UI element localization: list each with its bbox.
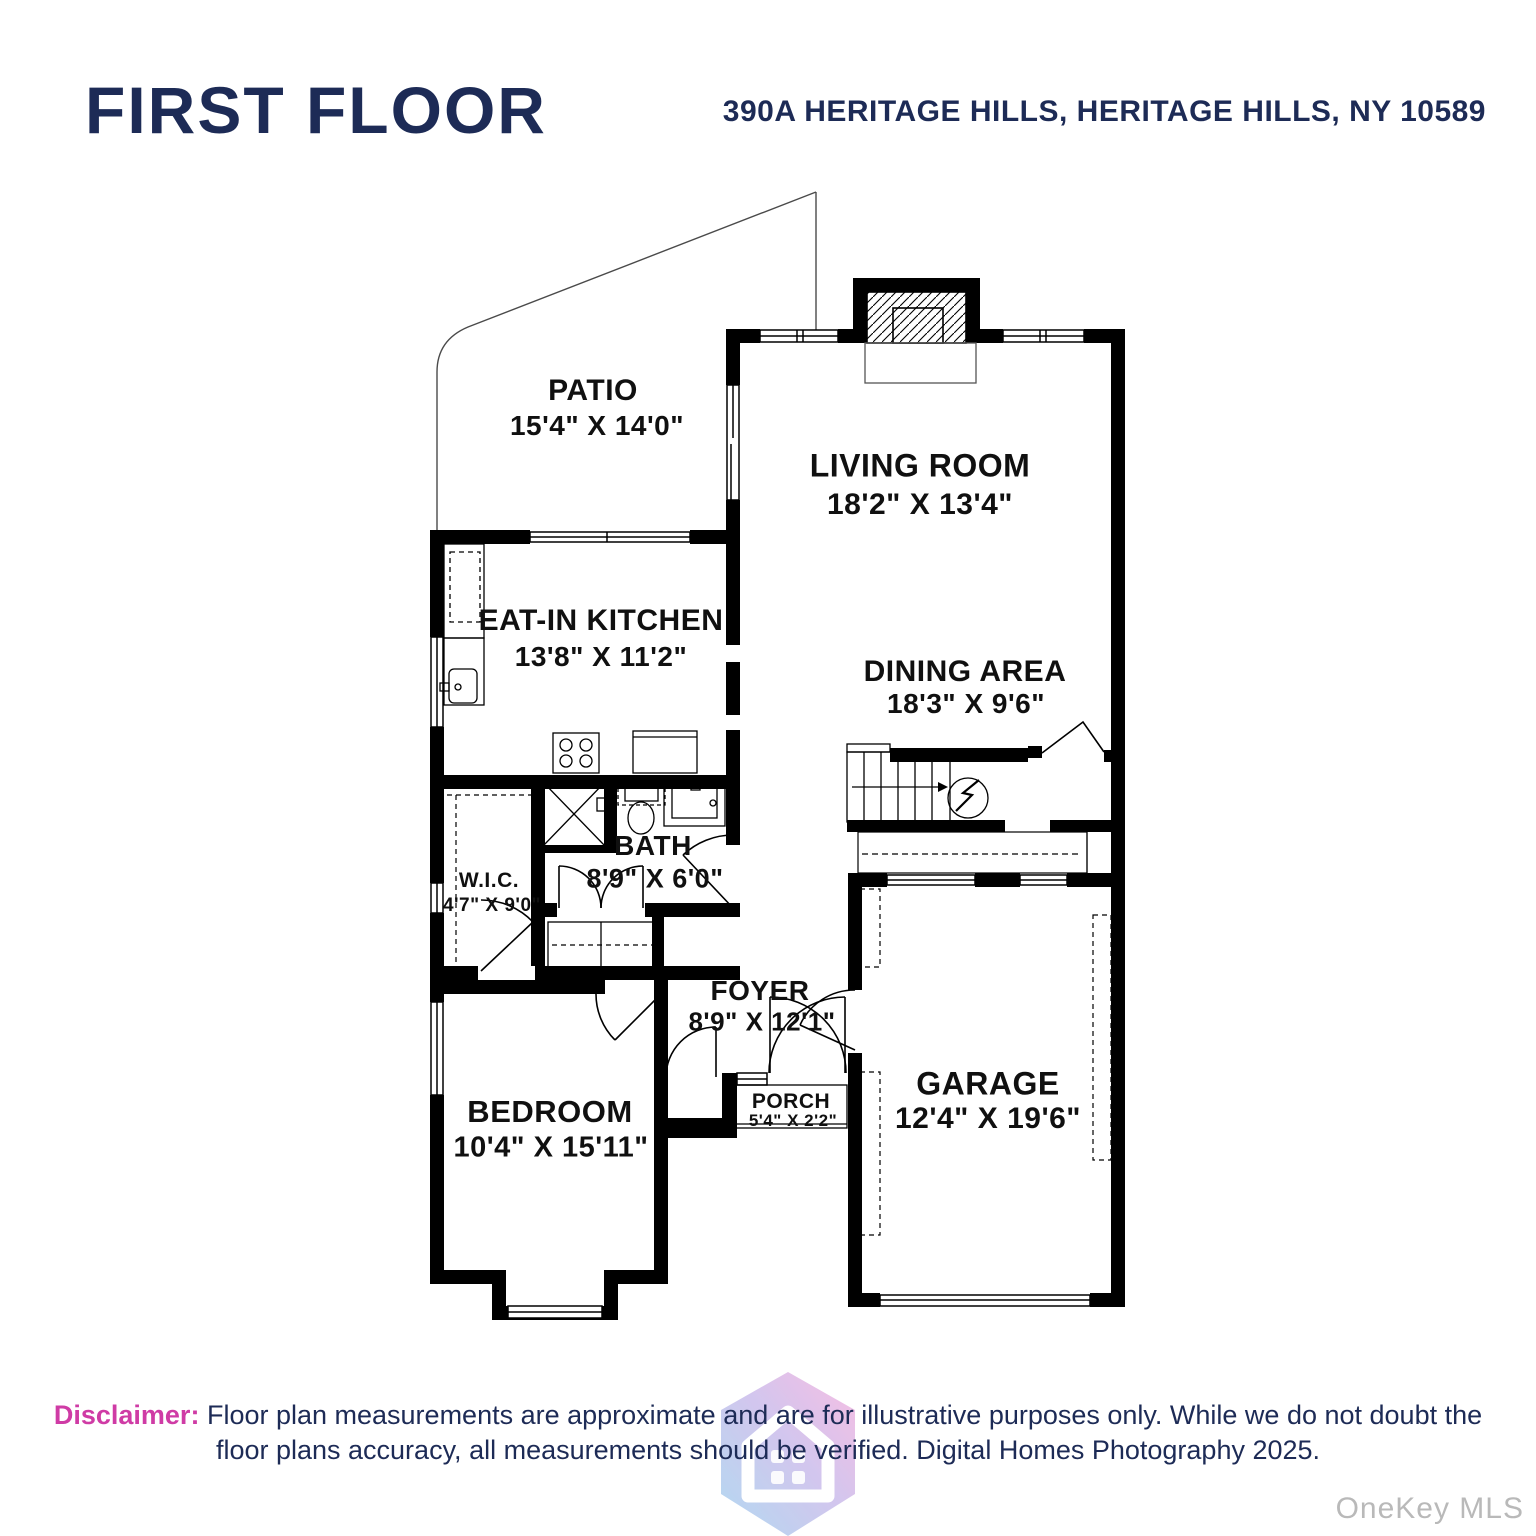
shower-icon bbox=[543, 782, 605, 846]
fireplace-icon bbox=[865, 292, 976, 383]
room-label-dining-area: DINING AREA bbox=[864, 655, 1067, 689]
vanity-sink-icon bbox=[664, 781, 725, 826]
garage-window-left-icon bbox=[887, 875, 975, 885]
room-dims-patio: 15'4" X 14'0" bbox=[510, 410, 684, 442]
property-line bbox=[437, 192, 816, 530]
room-dims-garage: 12'4" X 19'6" bbox=[895, 1102, 1081, 1136]
garage-storage-strip bbox=[858, 832, 1087, 873]
floor-plan-drawing bbox=[0, 0, 1536, 1536]
room-dims-bath: 8'9" X 6'0" bbox=[586, 864, 723, 895]
room-label-foyer: FOYER bbox=[711, 975, 810, 1007]
stair-landing-symbol bbox=[948, 778, 988, 818]
kitchen-window-icon bbox=[530, 532, 690, 542]
room-dims-foyer: 8'9" X 12'1" bbox=[688, 1007, 835, 1038]
dining-bifold-door-icon bbox=[1028, 722, 1104, 758]
room-label-wic: W.I.C. bbox=[459, 869, 519, 893]
bedroom-window-icon bbox=[431, 1002, 443, 1095]
mls-watermark: OneKey MLS bbox=[1336, 1492, 1524, 1526]
room-label-bedroom: BEDROOM bbox=[467, 1094, 632, 1130]
room-label-bath: BATH bbox=[614, 830, 692, 862]
floor-plan-page: FIRST FLOOR 390A HERITAGE HILLS, HERITAG… bbox=[0, 0, 1536, 1536]
room-label-kitchen: EAT-IN KITCHEN bbox=[479, 604, 724, 638]
disclaimer-line1: Floor plan measurements are approximate … bbox=[207, 1400, 1482, 1430]
stair-direction-arrow bbox=[852, 782, 948, 792]
living-window-right-icon bbox=[1003, 330, 1084, 342]
room-label-patio: PATIO bbox=[548, 374, 638, 408]
disclaimer-text: Disclaimer: Floor plan measurements are … bbox=[0, 1398, 1536, 1468]
front-sidelight-icon bbox=[737, 1073, 767, 1085]
wic-window-icon bbox=[431, 883, 443, 913]
linen-counter-icon bbox=[548, 922, 657, 968]
dishwasher-counter-icon bbox=[633, 731, 697, 773]
kitchen-side-window-icon bbox=[431, 637, 443, 727]
bedroom-door-icon bbox=[596, 994, 661, 1040]
room-dims-dining-area: 18'3" X 9'6" bbox=[887, 688, 1045, 720]
room-dims-living-room: 18'2" X 13'4" bbox=[827, 488, 1013, 522]
room-dims-porch: 5'4" X 2'2" bbox=[749, 1111, 837, 1131]
living-window-left-icon bbox=[760, 330, 838, 342]
room-label-garage: GARAGE bbox=[916, 1066, 1059, 1103]
garage-window-right-icon bbox=[1020, 875, 1067, 885]
room-dims-wic: 4'7" X 9'0" bbox=[443, 895, 541, 917]
sink-counter-icon bbox=[440, 638, 484, 705]
room-dims-kitchen: 13'8" X 11'2" bbox=[515, 641, 688, 673]
room-label-living-room: LIVING ROOM bbox=[810, 448, 1031, 485]
garage-storage-dashed bbox=[860, 889, 1111, 1235]
disclaimer-label: Disclaimer: bbox=[54, 1400, 200, 1430]
patio-slider-icon bbox=[727, 385, 739, 500]
stove-icon bbox=[553, 733, 599, 773]
disclaimer-line2: floor plans accuracy, all measurements s… bbox=[216, 1435, 1320, 1465]
garage-details bbox=[858, 832, 1111, 1235]
garage-door-icon bbox=[880, 1295, 1090, 1306]
bay-window-icon bbox=[508, 1306, 602, 1318]
room-dims-bedroom: 10'4" X 15'11" bbox=[453, 1132, 648, 1165]
